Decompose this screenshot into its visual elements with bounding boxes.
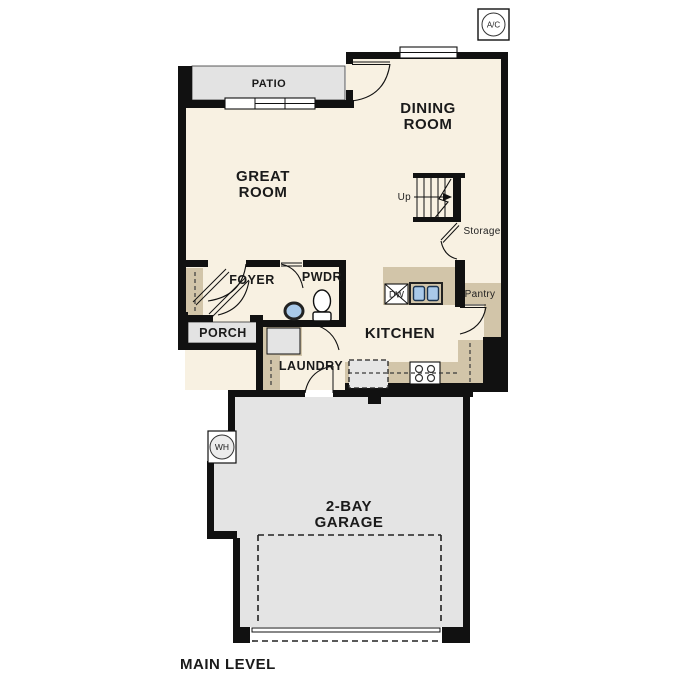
pwdr-sink [285, 303, 303, 319]
wall-garage-top-b [333, 390, 473, 397]
dishwasher-label: DW [389, 290, 404, 300]
wall-garage-bottom-left [233, 627, 252, 643]
porch-label: PORCH [199, 326, 247, 340]
laundry-label: LAUNDRY [279, 359, 343, 373]
garage-label-2: GARAGE [315, 514, 384, 531]
wh-label: WH [215, 442, 229, 452]
dishwasher: DW [385, 284, 408, 304]
foyer-label: FOYER [229, 273, 275, 287]
kitchen-sink [410, 283, 442, 304]
refrigerator-space [349, 360, 388, 388]
wall-garage-right [463, 390, 470, 635]
pantry-label: Pantry [465, 289, 496, 300]
dining-label-2: ROOM [404, 116, 453, 133]
wall-garage-left-mid [207, 461, 214, 538]
kitchen-label: KITCHEN [365, 325, 435, 342]
pwdr-label: PWDR [302, 270, 342, 284]
garage-label-1: 2-BAY [326, 498, 372, 515]
wall-dining-left-a [346, 52, 353, 64]
greatroom-label-2: ROOM [239, 184, 288, 201]
wall-dining-left-b [346, 90, 353, 108]
floor-plan-page: DW [0, 0, 687, 687]
dining-window [400, 47, 457, 58]
wall-foyer-b [246, 260, 280, 267]
wall-pillar [368, 392, 381, 404]
ac-label: A/C [487, 21, 501, 30]
wall-porch-b [250, 315, 263, 322]
patio-label: PATIO [252, 78, 286, 90]
stairs-up-label: Up [398, 192, 412, 203]
wall-pwdr-bottom [262, 320, 346, 327]
wall-left [178, 100, 186, 315]
wall-front-bottom [178, 343, 263, 350]
plan-title: MAIN LEVEL [180, 656, 276, 673]
garage-floor-nook [214, 463, 235, 533]
water-heater: WH [208, 431, 236, 463]
ac-unit: A/C [478, 9, 509, 40]
floor-plan-drawing: DW [0, 0, 687, 687]
wall-garage-top-a [233, 390, 305, 397]
pantry-shelf-right [484, 304, 501, 337]
garage-door-panel [252, 628, 440, 632]
wall-garage-left-upper [228, 390, 235, 435]
storage-label: Storage [463, 226, 500, 237]
wall-garage-left-step [207, 531, 237, 539]
wall-laundry-left [256, 315, 263, 397]
wall-porch-a [185, 315, 213, 322]
toilet [313, 290, 331, 321]
wall-foyer-a [185, 260, 208, 267]
dining-label-1: DINING [400, 100, 456, 117]
wall-right [501, 52, 508, 343]
dining-floor [346, 59, 501, 104]
washer-dryer [267, 328, 300, 354]
patio-slider-window [225, 98, 315, 109]
wall-garage-left-lower [233, 538, 240, 633]
greatroom-label-1: GREAT [236, 168, 290, 185]
wall-right-lower-block [483, 337, 508, 392]
wall-stairs-right [453, 173, 461, 222]
wall-storage-bottom [455, 260, 465, 307]
